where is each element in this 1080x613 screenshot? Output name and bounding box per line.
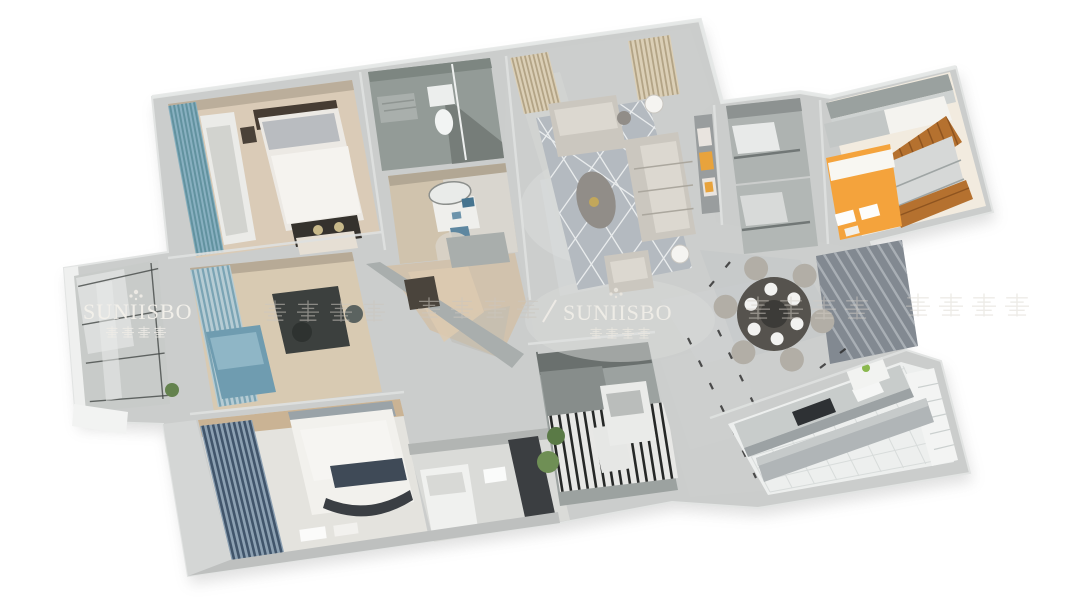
svg-text:SUNIISBO: SUNIISBO (563, 300, 672, 325)
svg-text:SUNIISBO: SUNIISBO (83, 299, 192, 324)
